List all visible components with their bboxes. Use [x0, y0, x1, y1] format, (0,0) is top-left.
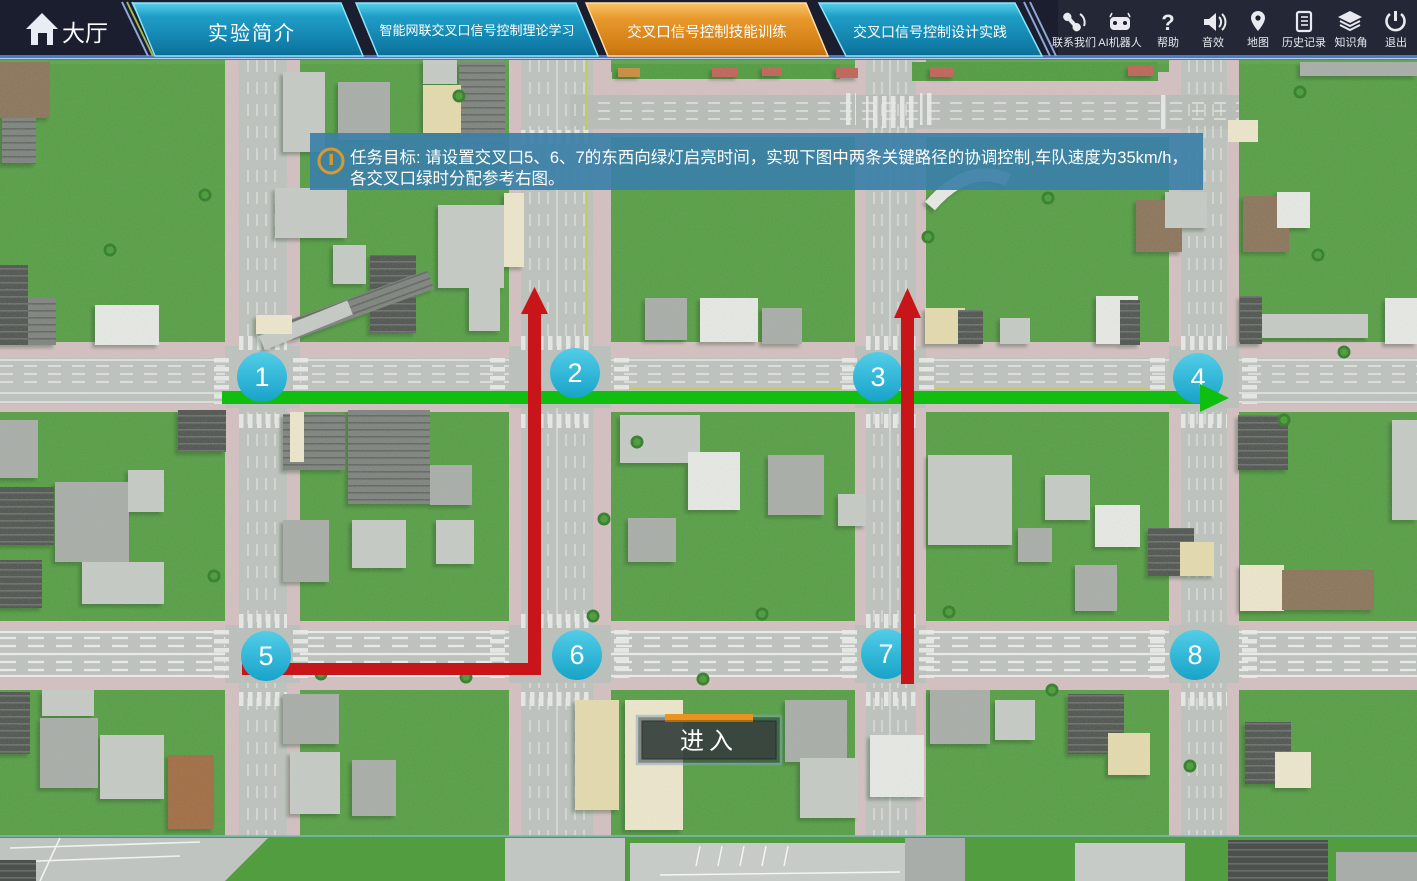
svg-text:交叉口信号控制设计实践: 交叉口信号控制设计实践 — [853, 24, 1007, 40]
svg-text:8: 8 — [1187, 640, 1202, 670]
svg-text:历史记录: 历史记录 — [1282, 36, 1326, 49]
svg-text:7: 7 — [878, 639, 893, 669]
svg-text:任务目标: 请设置交叉口5、6、7的东西向绿灯启亮时间，实现: 任务目标: 请设置交叉口5、6、7的东西向绿灯启亮时间，实现下图中两条关键路径的… — [350, 148, 1188, 167]
svg-text:帮助: 帮助 — [1157, 35, 1179, 49]
svg-text:大厅: 大厅 — [62, 20, 108, 46]
svg-text:退出: 退出 — [1385, 35, 1407, 49]
svg-text:地图: 地图 — [1247, 36, 1269, 49]
svg-text:知识角: 知识角 — [1335, 35, 1368, 49]
svg-text:交叉口信号控制技能训练: 交叉口信号控制技能训练 — [627, 23, 787, 41]
svg-text:音效: 音效 — [1202, 35, 1224, 49]
svg-text:智能网联交叉口信号控制理论学习: 智能网联交叉口信号控制理论学习 — [379, 23, 574, 38]
svg-text:?: ? — [1161, 10, 1174, 35]
svg-text:3: 3 — [870, 362, 885, 392]
svg-text:2: 2 — [567, 358, 582, 388]
svg-text:6: 6 — [569, 640, 584, 670]
svg-text:AI机器人: AI机器人 — [1098, 35, 1141, 49]
svg-text:各交叉口绿时分配参考右图。: 各交叉口绿时分配参考右图。 — [350, 169, 565, 188]
svg-text:5: 5 — [258, 641, 273, 671]
svg-text:实验简介: 实验简介 — [208, 22, 296, 45]
svg-text:联系我们: 联系我们 — [1052, 35, 1096, 49]
svg-text:1: 1 — [254, 362, 269, 392]
svg-text:进入: 进入 — [680, 728, 738, 755]
